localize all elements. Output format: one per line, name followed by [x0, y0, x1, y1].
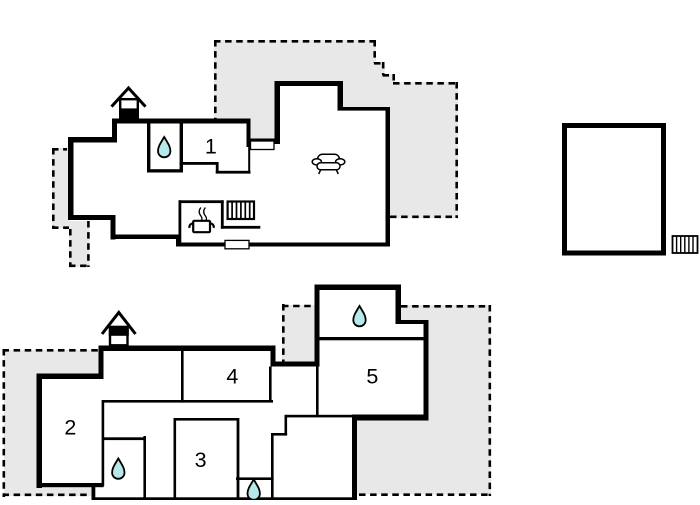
- svg-text:2: 2: [64, 416, 76, 440]
- svg-text:1: 1: [205, 135, 217, 159]
- svg-text:5: 5: [366, 365, 378, 389]
- svg-text:4: 4: [226, 365, 238, 389]
- svg-text:3: 3: [195, 448, 207, 472]
